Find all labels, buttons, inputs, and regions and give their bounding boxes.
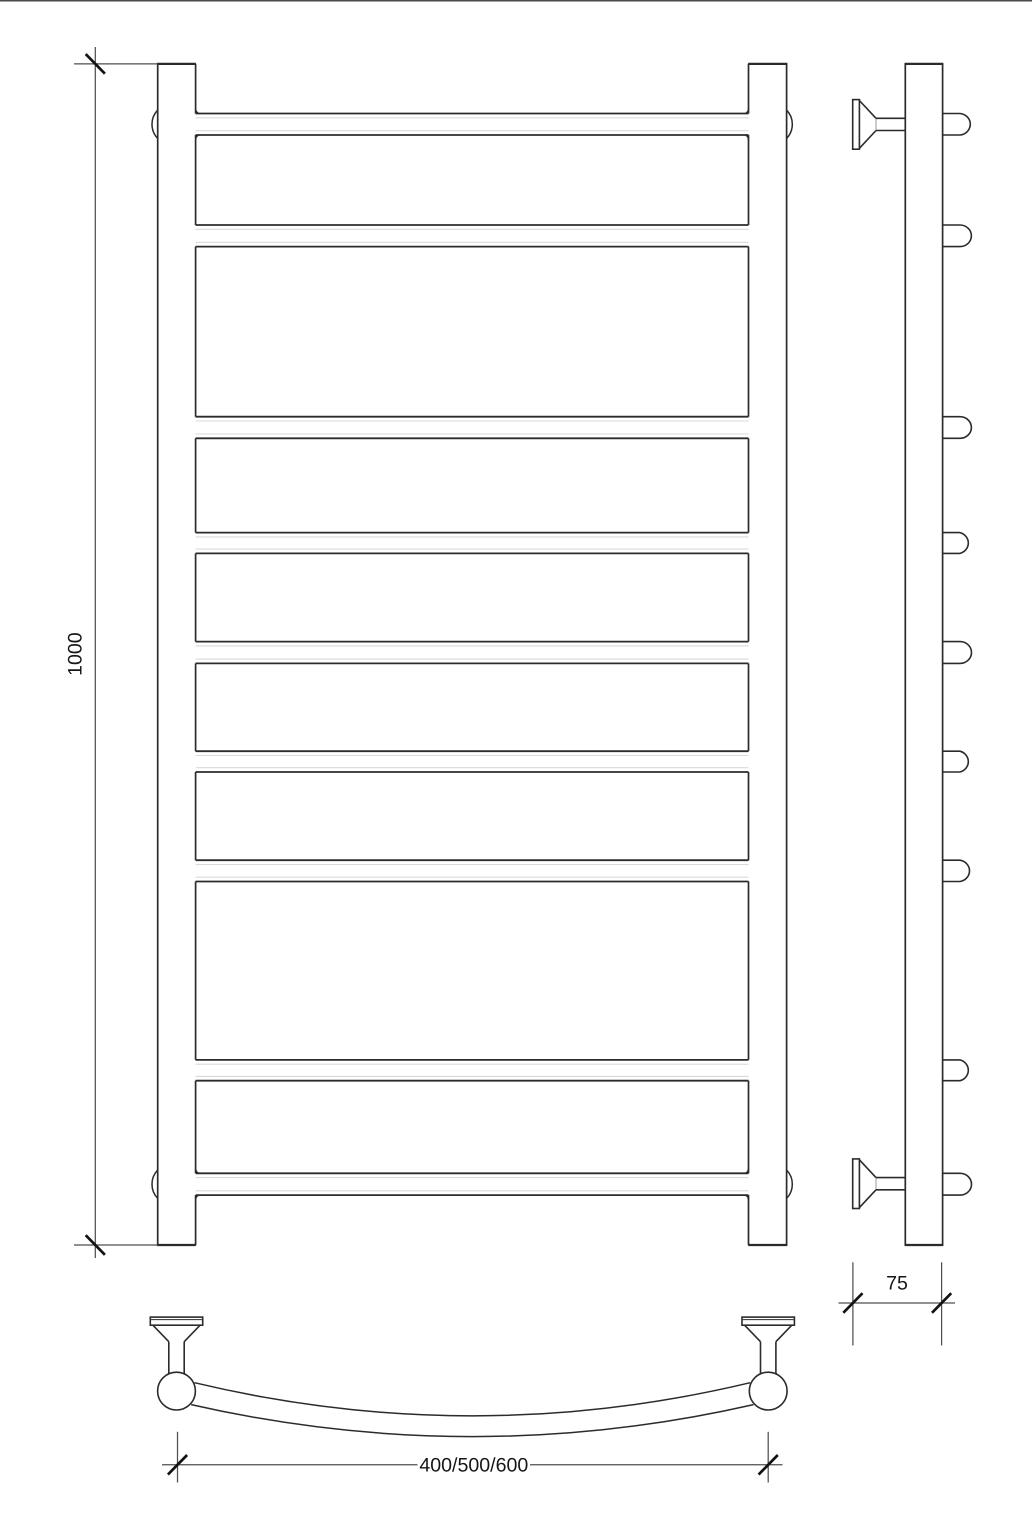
svg-text:400/500/600: 400/500/600 bbox=[419, 1454, 528, 1476]
svg-text:75: 75 bbox=[886, 1273, 908, 1295]
svg-text:1000: 1000 bbox=[65, 632, 87, 676]
